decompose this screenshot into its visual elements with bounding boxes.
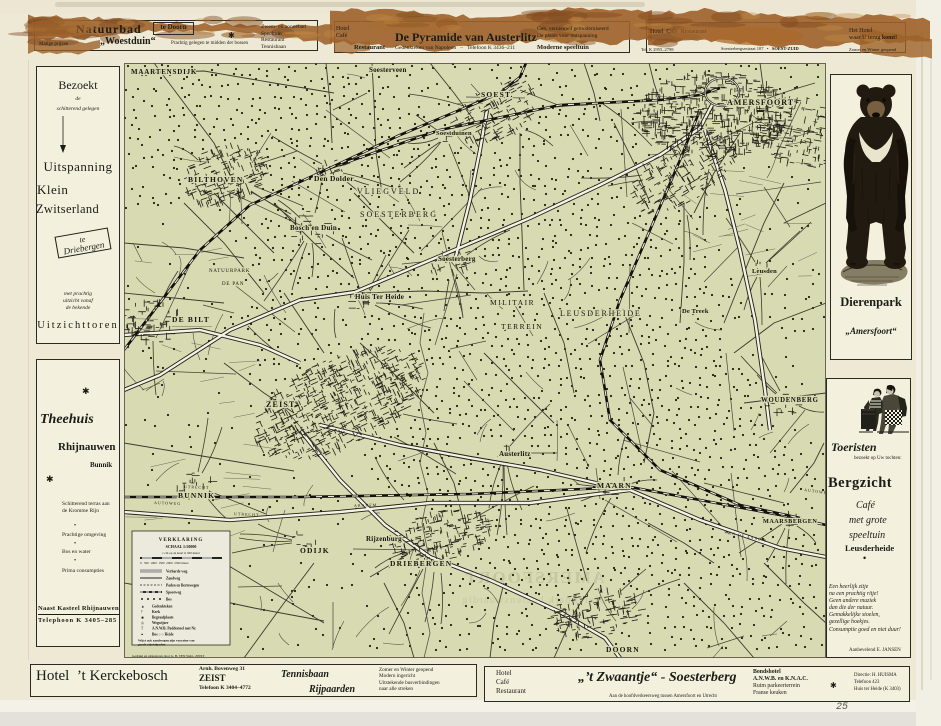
svg-text:VERKLARING: VERKLARING: [159, 538, 203, 543]
svg-text:DE BILT: DE BILT: [172, 315, 210, 324]
svg-text:MAARN: MAARN: [597, 481, 632, 490]
svg-text:Wegwijzer: Wegwijzer: [152, 621, 169, 625]
svg-text:Huis Ter Heide: Huis Ter Heide: [355, 293, 404, 301]
svg-text:VLIEGVELD: VLIEGVELD: [357, 187, 420, 196]
svg-text:De Treek: De Treek: [682, 308, 709, 315]
svg-text:SOESTERBERG: SOESTERBERG: [360, 210, 438, 219]
svg-text:Soesterberg: Soesterberg: [438, 255, 476, 263]
svg-text:LEUSDERHEIDE: LEUSDERHEIDE: [560, 309, 642, 318]
svg-text:DRIEBERGEN: DRIEBERGEN: [390, 559, 452, 568]
svg-text:MILITAIR: MILITAIR: [490, 298, 535, 307]
svg-text:ARNHEM: ARNHEM: [354, 502, 378, 508]
svg-text:ZEIST: ZEIST: [266, 400, 296, 409]
svg-text:†: †: [141, 610, 143, 614]
svg-text:Kerk: Kerk: [152, 610, 160, 614]
svg-text:Paden en Bermwegen: Paden en Bermwegen: [166, 583, 199, 587]
svg-text:Dierenpark bezienswaardig: Dierenpark bezienswaardig: [461, 594, 607, 606]
svg-text:AMERSFOORT: AMERSFOORT: [463, 568, 604, 587]
svg-text:Spoorweg: Spoorweg: [166, 590, 181, 594]
svg-text:NATUURPARK: NATUURPARK: [209, 269, 250, 274]
svg-text:ODIJK: ODIJK: [300, 546, 330, 555]
svg-text:UTRECHT: UTRECHT: [184, 484, 210, 490]
svg-text:goede rijwielpaden: goede rijwielpaden: [138, 643, 166, 647]
svg-text:SCHAAL 1:50000: SCHAAL 1:50000: [166, 544, 197, 549]
svg-text:AMERSFOORT: AMERSFOORT: [727, 98, 794, 107]
svg-text:AUTOWEG: AUTOWEG: [154, 500, 181, 506]
svg-text:A.N.W.B. Paddestoel met Nr.: A.N.W.B. Paddestoel met Nr.: [152, 627, 196, 631]
svg-text:BILTHOVEN: BILTHOVEN: [188, 175, 244, 184]
svg-text:Gedenkteken: Gedenkteken: [152, 604, 172, 608]
svg-text:DE PAN: DE PAN: [222, 282, 244, 287]
svg-text:Bosch en Duin: Bosch en Duin: [290, 224, 337, 232]
svg-text:Soestduinen: Soestduinen: [436, 130, 472, 137]
svg-text:WOUDENBERG: WOUDENBERG: [761, 397, 819, 404]
svg-text:Den Dolder: Den Dolder: [314, 174, 354, 183]
svg-text:TERREIN: TERREIN: [501, 322, 543, 331]
svg-text:SOEST.: SOEST.: [481, 90, 514, 99]
svg-text:Rijzenburg: Rijzenburg: [366, 535, 402, 543]
svg-text:●: ●: [141, 632, 143, 636]
svg-text:Bos ○ ○ Heide: Bos ○ ○ Heide: [152, 632, 174, 636]
svg-text:1 cm op de kaart is 500 meter: 1 cm op de kaart is 500 meter: [162, 551, 201, 555]
svg-text:Leusden: Leusden: [752, 268, 777, 275]
svg-text:MAARSBERGEN: MAARSBERGEN: [763, 518, 817, 525]
svg-text:▲: ▲: [141, 604, 145, 608]
svg-text:Begraafplaats: Begraafplaats: [152, 616, 174, 620]
svg-text:Bos: Bos: [166, 597, 172, 601]
svg-text:0 500 1000 1500 2000 250: 0 500 1000 1500 2000 2500 meter: [140, 561, 190, 565]
svg-text:Verharde weg: Verharde weg: [166, 569, 188, 573]
svg-text:Zandweg: Zandweg: [166, 576, 180, 580]
svg-text:BUNNIK: BUNNIK: [178, 491, 215, 500]
svg-text:Austerlitz: Austerlitz: [499, 450, 531, 458]
svg-text:DOORN: DOORN: [606, 645, 640, 654]
